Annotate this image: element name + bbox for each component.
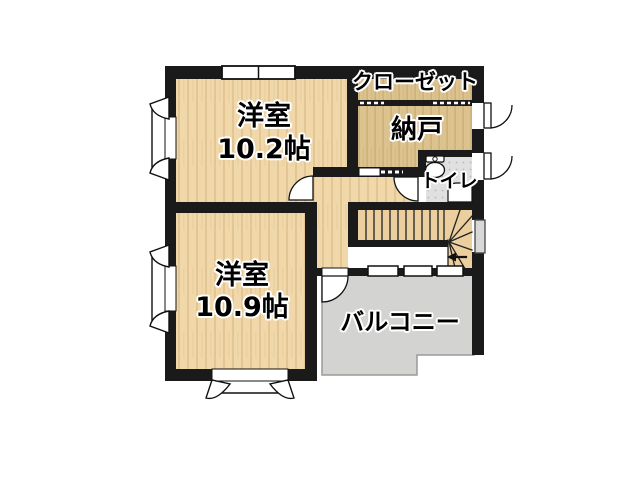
bedroom-lower-label: 洋室 <box>215 262 269 289</box>
window-stairs <box>475 220 485 253</box>
wall <box>472 128 484 154</box>
toilet-right-door <box>472 153 512 180</box>
floorplan-page: 洋室 10.2帖 洋室 10.9帖 クローゼット 納戸 トイレ バルコニー <box>0 0 640 480</box>
bedroom-upper-area: 10.2帖 <box>217 136 311 163</box>
floorplan-drawing <box>0 0 640 480</box>
balcony-door-opening <box>322 268 348 276</box>
bedroom-upper-label: 洋室 <box>237 103 291 130</box>
wall <box>165 369 212 381</box>
storeroom-right-door <box>472 103 512 129</box>
hall-floor <box>317 177 348 268</box>
wall <box>305 213 317 381</box>
balcony-windows <box>368 266 463 276</box>
wall <box>472 252 484 355</box>
wall <box>348 202 472 210</box>
toilet-label: トイレ <box>420 172 477 191</box>
bedroom-lower-area: 10.9帖 <box>195 294 289 321</box>
wall <box>348 268 368 276</box>
balcony-label: バルコニー <box>340 310 460 334</box>
wall <box>165 202 317 213</box>
storeroom-label: 納戸 <box>391 117 443 143</box>
wall <box>463 268 472 276</box>
window-top <box>222 66 295 79</box>
window-bottom <box>206 369 294 398</box>
wall <box>398 268 404 276</box>
wall <box>348 240 448 247</box>
closet-label: クローゼット <box>352 72 478 93</box>
bedroom-lower-floor <box>176 213 305 369</box>
wall <box>305 268 322 276</box>
